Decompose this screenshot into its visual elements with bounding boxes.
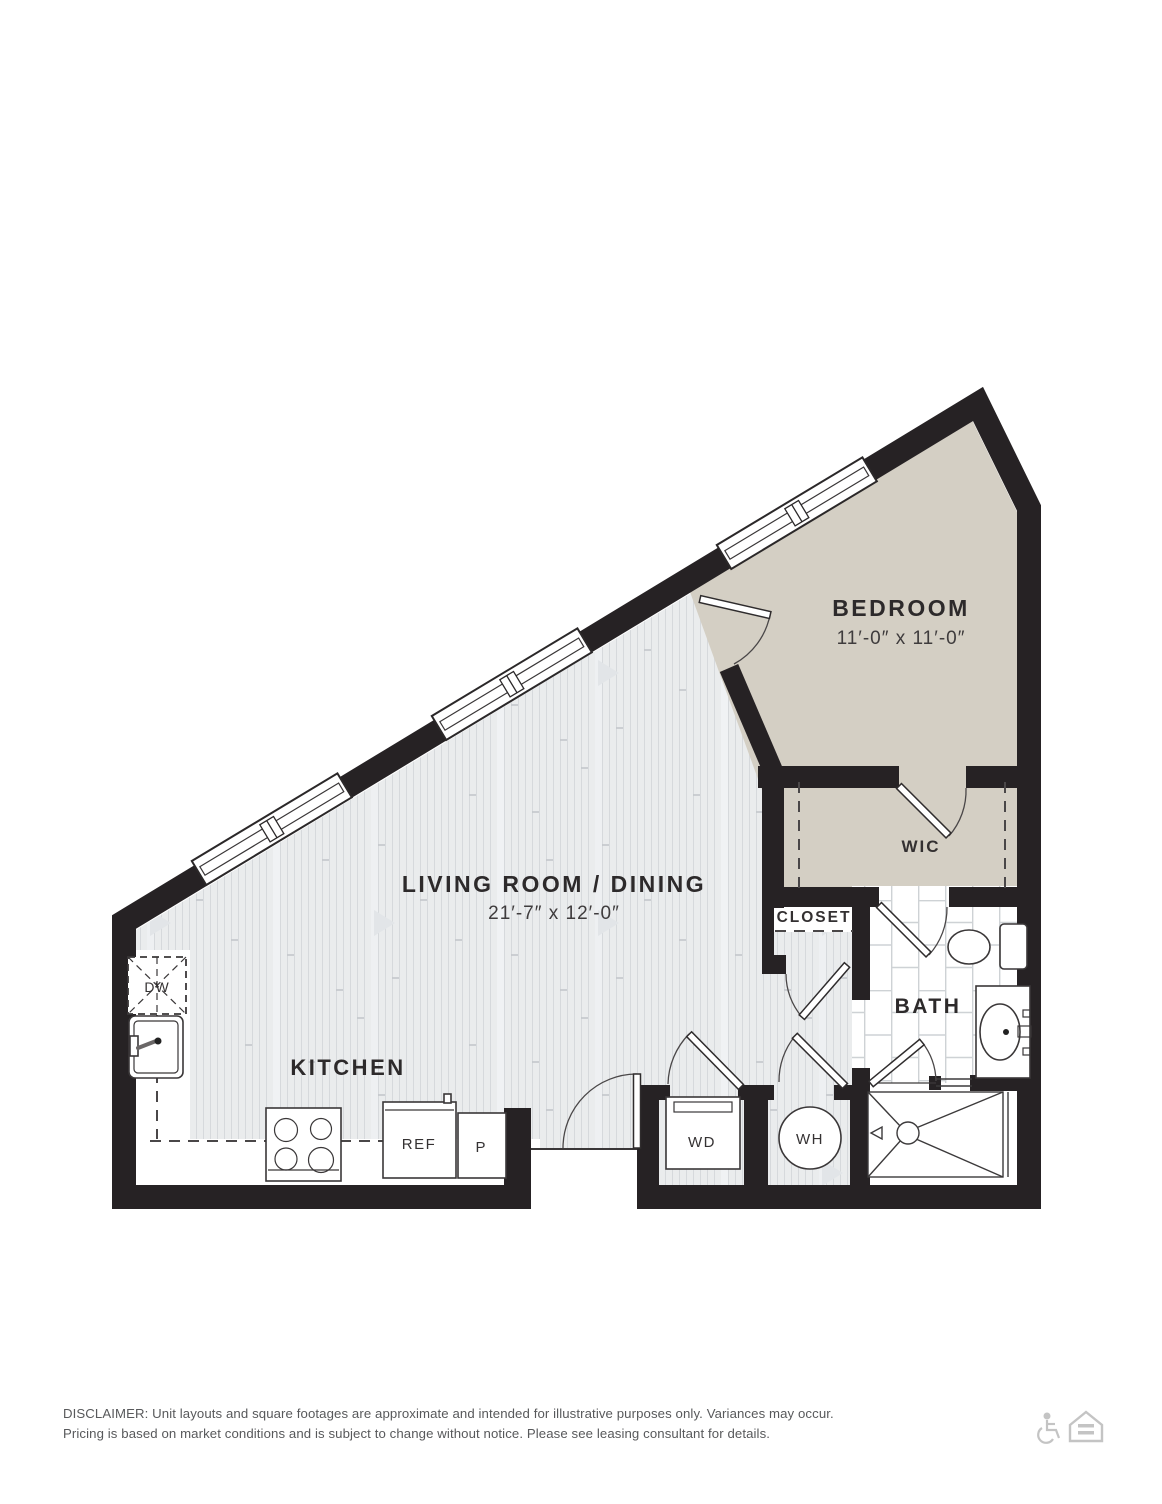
wd-wh-divider-wall bbox=[744, 1085, 768, 1209]
disclaimer-line-1: DISCLAIMER: Unit layouts and square foot… bbox=[63, 1404, 1043, 1424]
living-room-label: LIVING ROOM / DINING bbox=[402, 871, 706, 897]
dishwasher-label: DW bbox=[144, 979, 169, 995]
bedroom-dims: 11′-0″ x 11′-0″ bbox=[837, 628, 966, 649]
wic-label: WIC bbox=[901, 837, 940, 856]
washer-dryer-label: WD bbox=[688, 1134, 716, 1151]
closet-wall-nub bbox=[762, 955, 786, 974]
disclaimer: DISCLAIMER: Unit layouts and square foot… bbox=[63, 1404, 1043, 1444]
stove bbox=[266, 1108, 341, 1181]
entry-left-jamb bbox=[504, 1108, 531, 1209]
wd-wh-divider-stub bbox=[738, 1085, 774, 1100]
living-room-dims: 21′-7″ x 12′-0″ bbox=[488, 903, 620, 924]
shower-pan bbox=[868, 1092, 1008, 1177]
entry-alcove bbox=[531, 1149, 637, 1210]
refrigerator-label: REF bbox=[402, 1136, 437, 1153]
floor-plan-page: BEDROOM 11′-0″ x 11′-0″ LIVING ROOM / DI… bbox=[0, 0, 1162, 1504]
wd-closet-top-stub bbox=[637, 1085, 670, 1100]
disclaimer-line-2: Pricing is based on market conditions an… bbox=[63, 1424, 1043, 1444]
wic-floor bbox=[762, 770, 1020, 906]
closet-label: CLOSET bbox=[777, 909, 852, 926]
washer-dryer bbox=[666, 1097, 740, 1169]
bath-label: BATH bbox=[895, 995, 962, 1018]
wh-top-stub bbox=[834, 1085, 870, 1100]
equal-housing-icon bbox=[1070, 1412, 1102, 1441]
entry-exterior-gap bbox=[531, 1150, 637, 1210]
pantry-label: P bbox=[475, 1139, 486, 1156]
kitchen-sink bbox=[129, 1016, 183, 1078]
floor-plan: BEDROOM 11′-0″ x 11′-0″ LIVING ROOM / DI… bbox=[0, 0, 1162, 1504]
footer-icons bbox=[1038, 1412, 1102, 1443]
kitchen-label: KITCHEN bbox=[290, 1055, 405, 1080]
wh-right-wall bbox=[850, 1085, 870, 1209]
bathroom-sink bbox=[976, 986, 1031, 1078]
water-heater-label: WH bbox=[796, 1131, 824, 1148]
bedroom-label: BEDROOM bbox=[832, 595, 970, 621]
